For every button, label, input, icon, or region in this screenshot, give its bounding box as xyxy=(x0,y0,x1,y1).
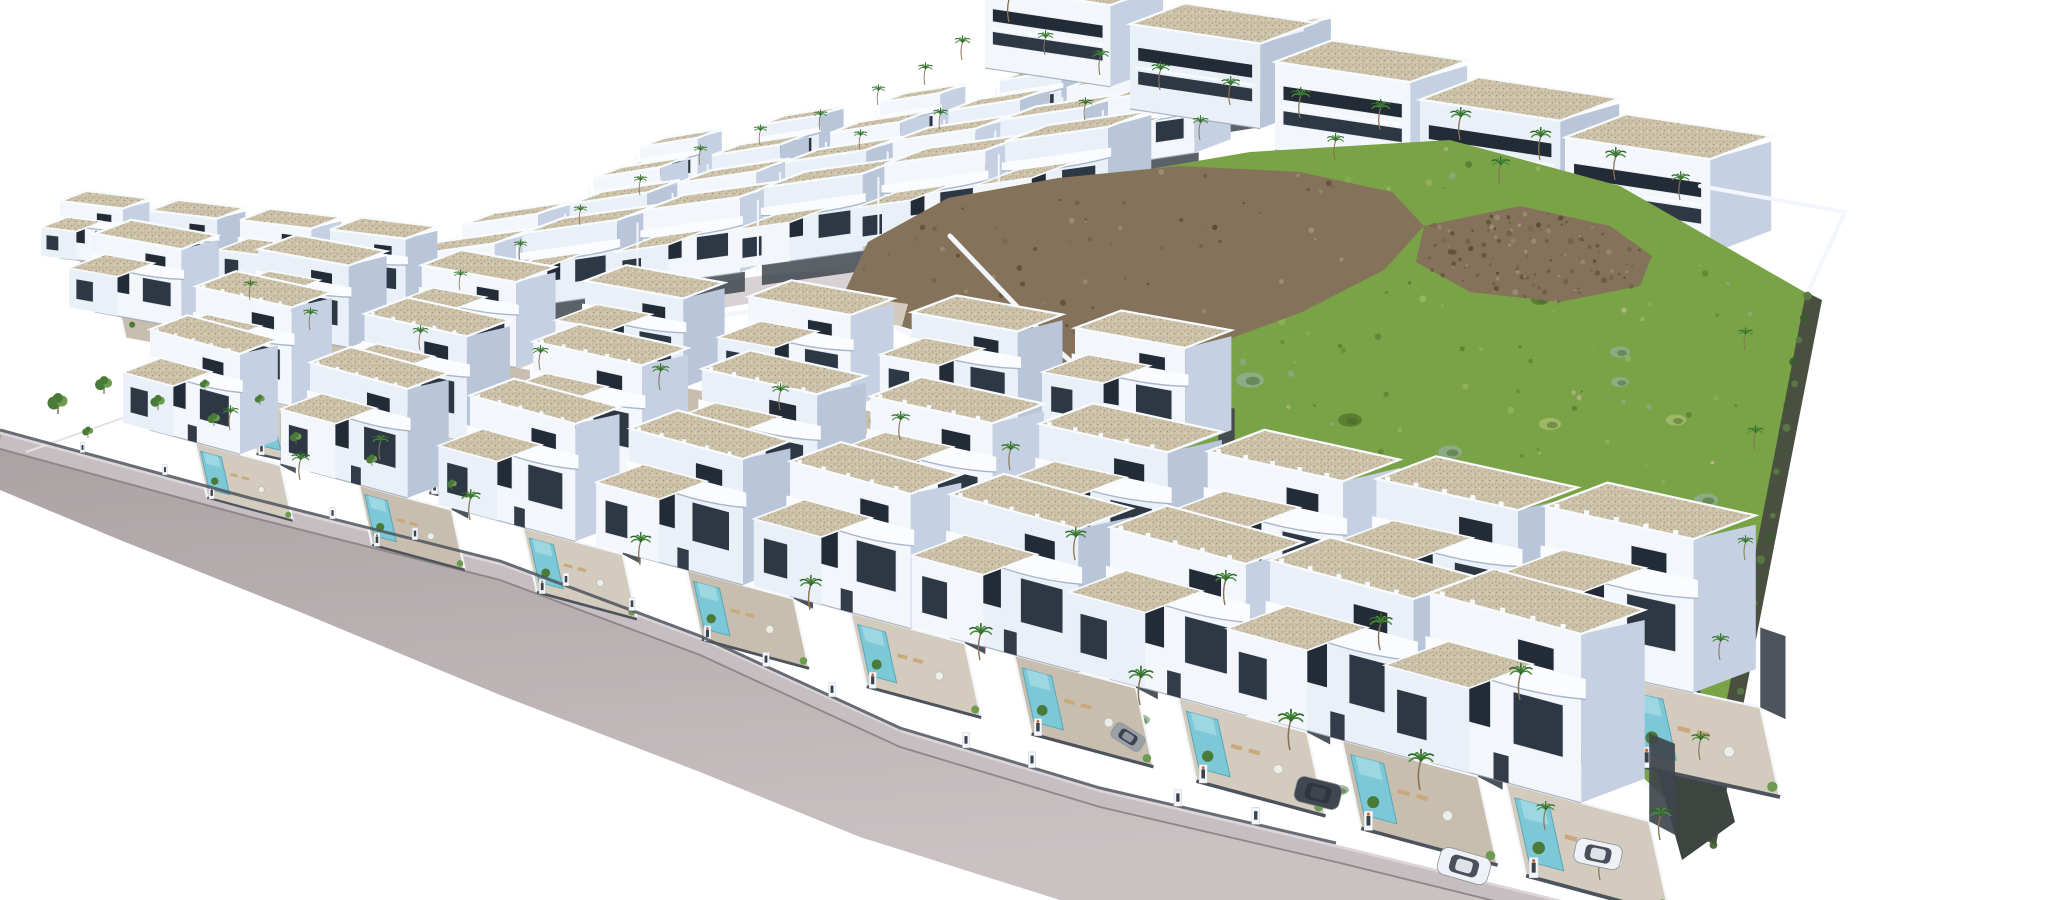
doorway xyxy=(841,588,853,613)
window xyxy=(1156,118,1185,143)
patio-table xyxy=(1443,811,1453,821)
window xyxy=(697,232,729,260)
patio-table xyxy=(1273,764,1283,774)
gate-pillar xyxy=(374,533,380,546)
doorway xyxy=(677,547,688,570)
window xyxy=(922,576,948,620)
shrub-clump xyxy=(1539,418,1561,430)
shrub xyxy=(872,660,882,670)
window xyxy=(1238,651,1267,700)
window xyxy=(742,236,762,259)
gate-pillar xyxy=(1529,858,1538,878)
window xyxy=(1397,689,1427,741)
doorway xyxy=(1330,711,1344,741)
patio-table xyxy=(1724,746,1735,757)
patio-table xyxy=(258,487,264,493)
shrub xyxy=(800,657,808,665)
doorway xyxy=(188,424,197,443)
shrub xyxy=(707,614,716,623)
patio-table xyxy=(935,672,943,680)
window xyxy=(1080,613,1107,660)
shrub xyxy=(1532,842,1545,855)
window xyxy=(130,387,148,418)
gate-pillar xyxy=(1199,765,1207,783)
tree xyxy=(82,426,93,438)
gate-pillar xyxy=(869,672,876,688)
gate-pillar xyxy=(539,580,545,594)
shrub xyxy=(1202,751,1213,762)
shrub xyxy=(1143,754,1152,763)
window xyxy=(46,235,59,251)
shrub xyxy=(1037,705,1048,716)
shrub-clump xyxy=(1666,415,1686,426)
shrub xyxy=(285,512,291,518)
doorway xyxy=(351,465,361,485)
gate-pillar xyxy=(1364,811,1372,830)
shrub xyxy=(1767,782,1777,792)
aerial-render-page xyxy=(0,0,2048,900)
side-yard xyxy=(1649,733,1675,835)
villa-development-aerial-render xyxy=(0,0,2048,900)
patio-table xyxy=(1104,718,1113,727)
patio-table xyxy=(597,579,604,586)
doorway xyxy=(1494,752,1509,783)
shrub xyxy=(457,560,464,567)
window xyxy=(289,424,309,458)
shrub xyxy=(1367,796,1379,808)
tree xyxy=(48,393,68,414)
shrub xyxy=(211,477,219,485)
shrub-clump xyxy=(1338,413,1362,426)
palm-tree xyxy=(919,63,933,85)
window xyxy=(818,210,851,239)
window xyxy=(143,277,172,307)
window xyxy=(1051,386,1073,416)
window xyxy=(605,500,628,539)
doorway xyxy=(1167,670,1181,698)
tree xyxy=(95,376,112,394)
palm-tree xyxy=(955,36,970,60)
window xyxy=(76,279,93,303)
window xyxy=(764,538,788,580)
side-yard xyxy=(1760,628,1785,720)
doorway xyxy=(1004,629,1017,655)
shrub xyxy=(129,322,135,328)
shrub-clump xyxy=(1611,377,1629,387)
shrub-clump xyxy=(1610,347,1630,358)
patio-table xyxy=(427,533,434,540)
gate-pillar xyxy=(1034,719,1041,736)
patio-table xyxy=(766,625,774,633)
shrub xyxy=(971,706,979,714)
shrub-clump xyxy=(1236,372,1264,387)
doorway xyxy=(514,506,525,528)
